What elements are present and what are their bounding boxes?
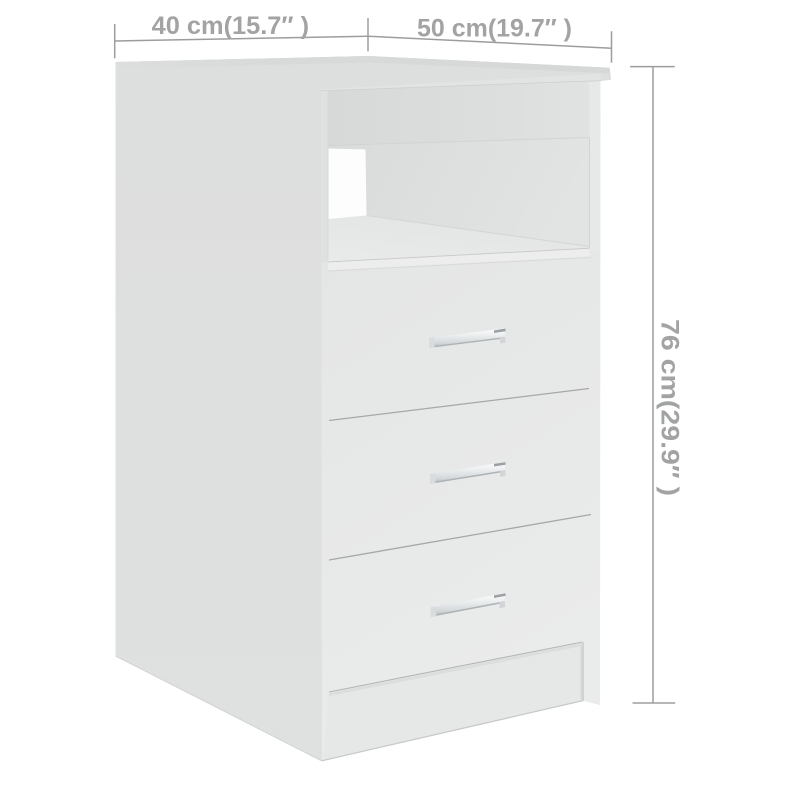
svg-text:76 cm(29.9″ ): 76 cm(29.9″ ) [656, 319, 684, 496]
svg-text:50 cm(19.7″ ): 50 cm(19.7″ ) [417, 14, 572, 42]
svg-text:40 cm(15.7″ ): 40 cm(15.7″ ) [152, 12, 310, 40]
